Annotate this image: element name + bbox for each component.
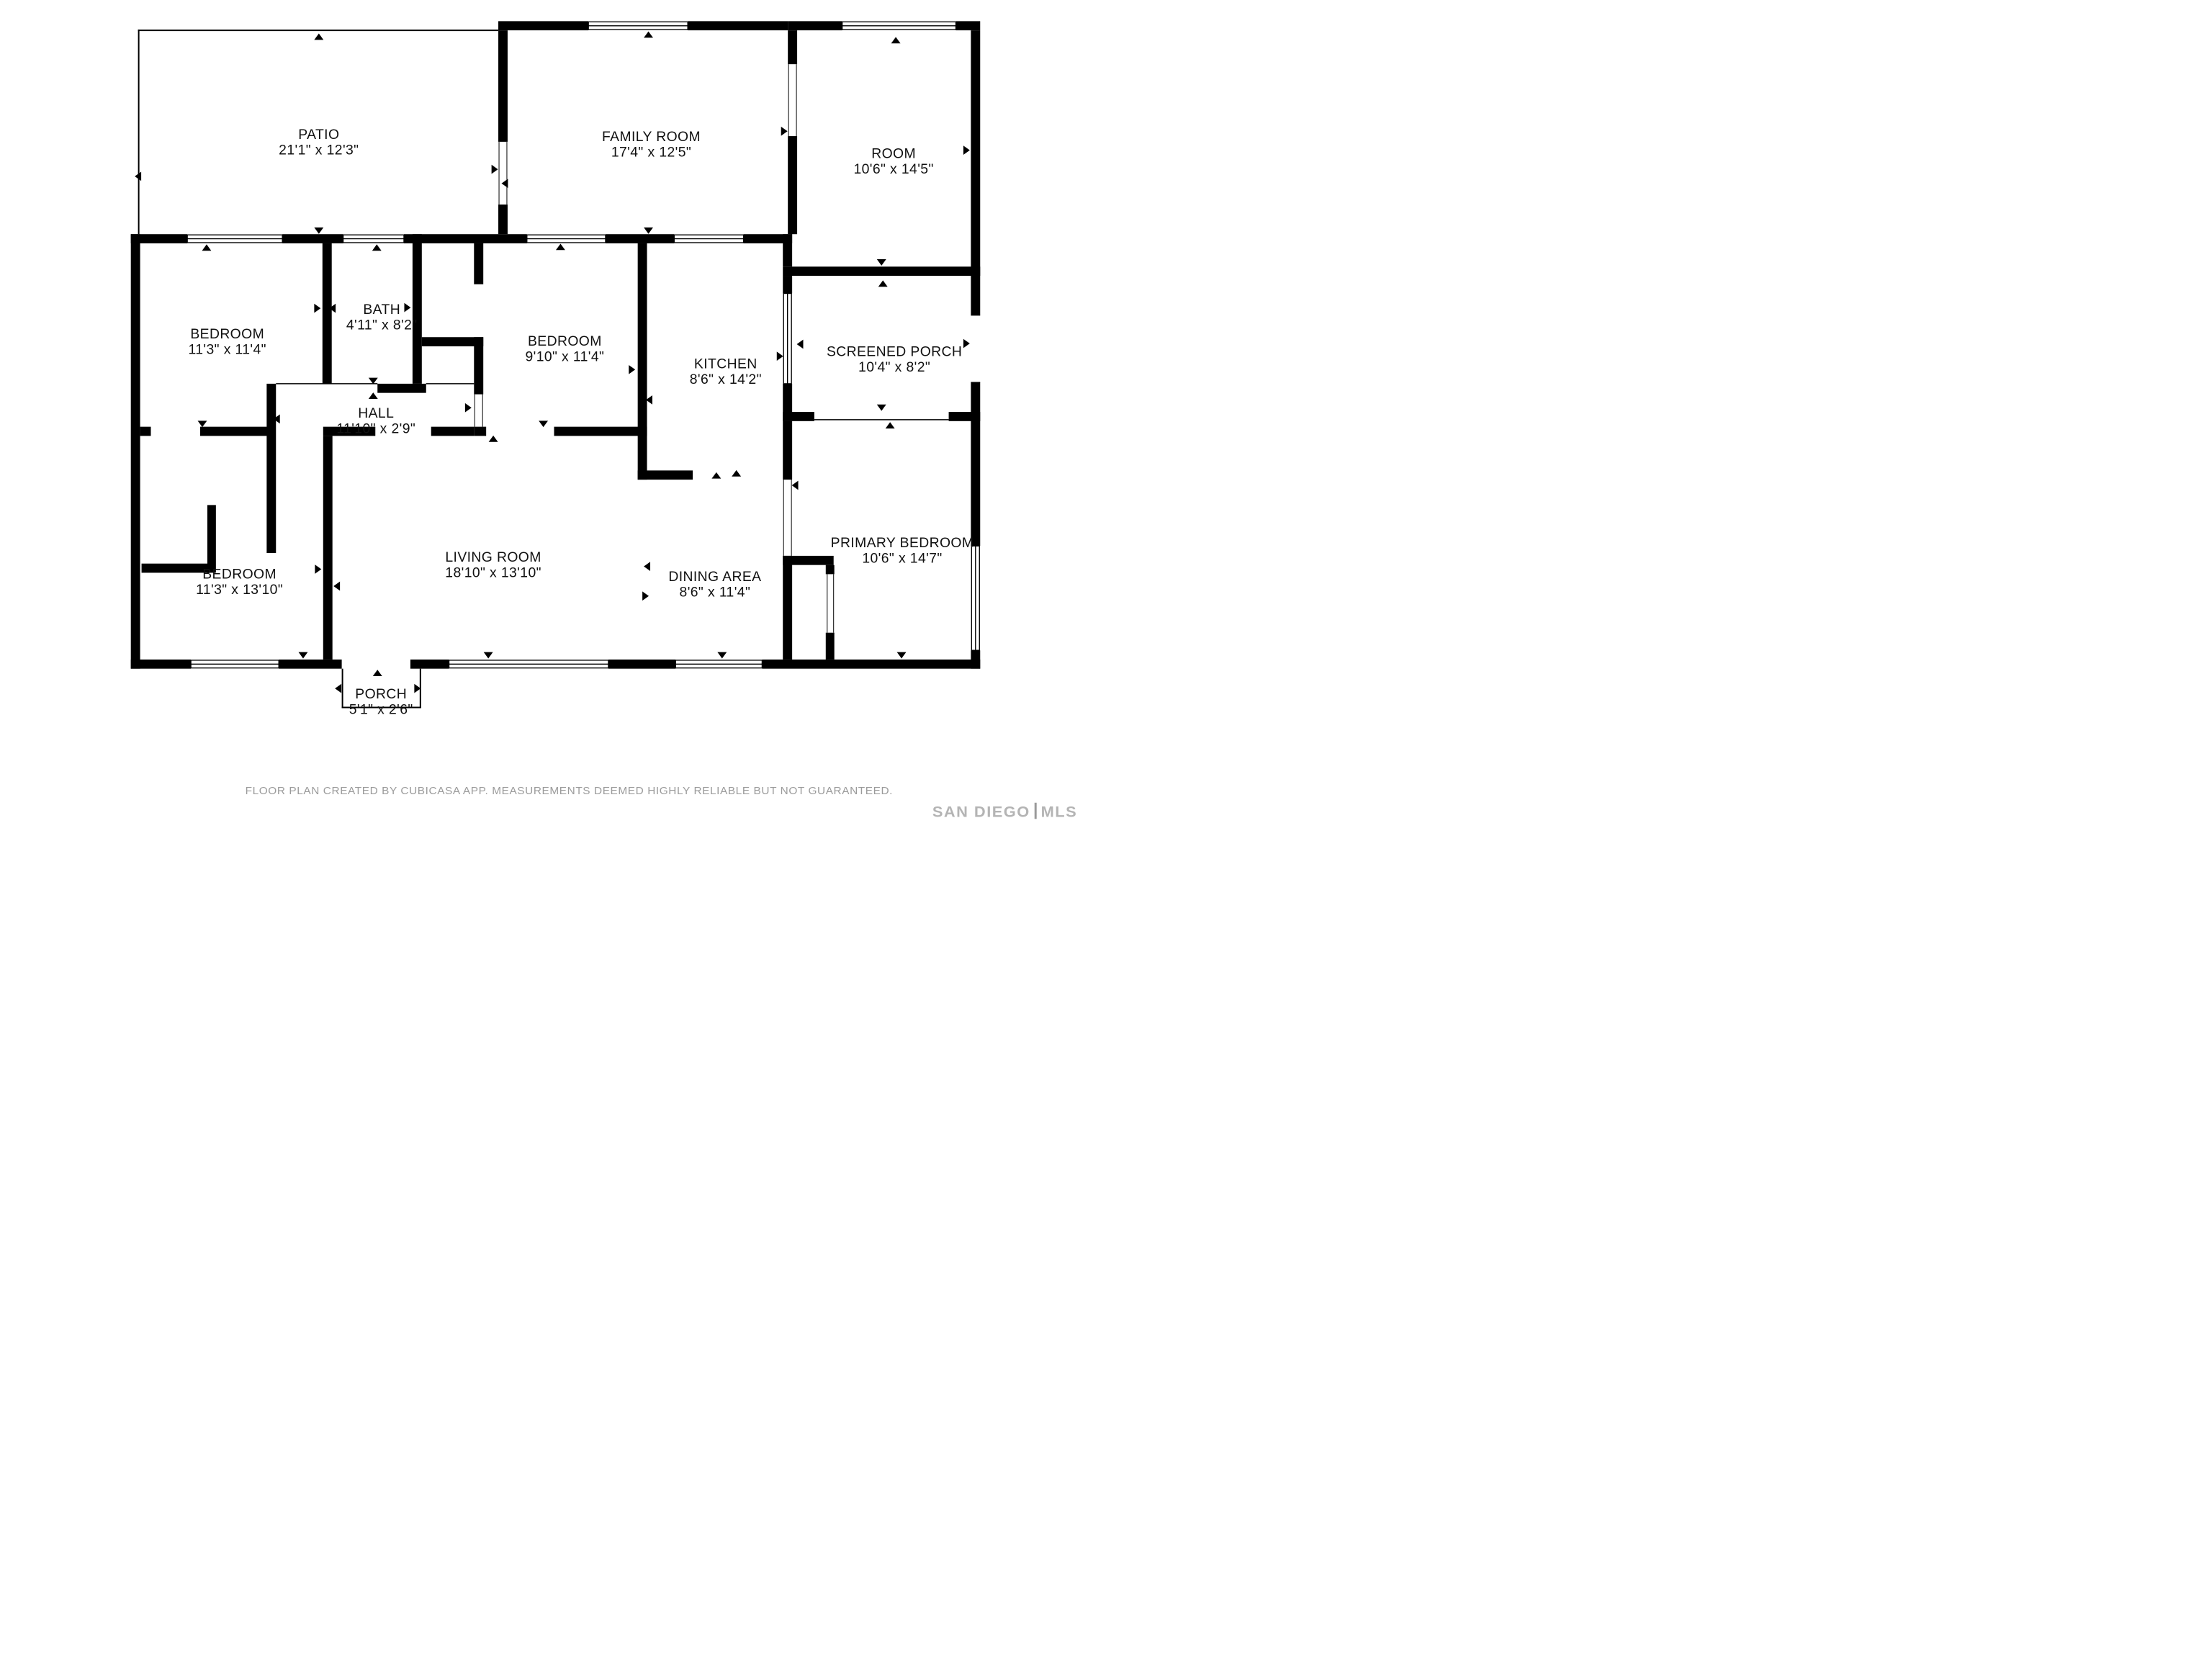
direction-arrow-icon bbox=[963, 339, 970, 349]
room-label-porch: PORCH bbox=[355, 687, 407, 702]
direction-arrow-icon bbox=[372, 244, 382, 251]
direction-arrow-icon bbox=[732, 470, 741, 477]
room-dims-patio: 21'1" x 12'3" bbox=[279, 143, 359, 158]
direction-arrow-icon bbox=[711, 472, 721, 479]
direction-arrow-icon bbox=[644, 562, 650, 571]
direction-arrow-icon bbox=[314, 304, 320, 313]
direction-arrow-icon bbox=[963, 145, 970, 155]
direction-arrow-icon bbox=[465, 403, 472, 413]
room-dims-kitchen: 8'6" x 14'2" bbox=[690, 372, 762, 387]
room-dims-hall: 11'10" x 2'9" bbox=[336, 422, 415, 437]
room-label-room: ROOM bbox=[871, 147, 916, 162]
mls-logo-name: SAN DIEGO bbox=[932, 803, 1030, 821]
room-labels: PATIO 21'1" x 12'3" FAMILY ROOM 17'4" x … bbox=[189, 127, 974, 717]
room-label-bedroom-bottom-left: BEDROOM bbox=[202, 567, 276, 582]
mls-logo: SAN DIEGO MLS bbox=[932, 803, 1077, 821]
room-dims-bedroom-middle: 9'10" x 11'4" bbox=[525, 350, 604, 365]
direction-arrow-icon bbox=[369, 378, 378, 385]
room-dims-bedroom-bottom-left: 11'3" x 13'10" bbox=[196, 583, 283, 598]
disclaimer-text: FLOOR PLAN CREATED BY CUBICASA APP. MEAS… bbox=[246, 785, 893, 797]
direction-arrow-icon bbox=[333, 582, 340, 591]
direction-arrow-icon bbox=[314, 34, 323, 40]
direction-arrow-icon bbox=[314, 228, 323, 234]
mls-logo-divider-icon bbox=[1035, 803, 1037, 819]
direction-arrow-icon bbox=[792, 481, 799, 490]
direction-arrow-icon bbox=[877, 405, 886, 411]
direction-arrow-icon bbox=[886, 422, 895, 428]
room-dims-dining-area: 8'6" x 11'4" bbox=[680, 585, 751, 601]
direction-arrow-icon bbox=[484, 652, 493, 659]
room-label-living-room: LIVING ROOM bbox=[445, 550, 541, 565]
room-dims-screened-porch: 10'4" x 8'2" bbox=[858, 360, 930, 375]
direction-arrow-icon bbox=[897, 652, 907, 659]
room-label-patio: PATIO bbox=[298, 127, 339, 143]
direction-arrow-icon bbox=[717, 652, 727, 659]
room-label-bedroom-middle: BEDROOM bbox=[528, 334, 602, 349]
direction-arrow-icon bbox=[539, 421, 548, 427]
room-dims-porch: 5'1" x 2'6" bbox=[349, 702, 413, 717]
direction-arrow-icon bbox=[492, 165, 498, 174]
room-label-hall: HALL bbox=[358, 406, 394, 421]
direction-arrow-icon bbox=[878, 280, 888, 287]
direction-arrow-icon bbox=[198, 421, 207, 427]
room-label-primary-bedroom: PRIMARY BEDROOM bbox=[831, 536, 974, 551]
room-dims-room: 10'6" x 14'5" bbox=[853, 162, 933, 177]
direction-arrow-icon bbox=[644, 32, 653, 38]
room-label-bath: BATH bbox=[363, 302, 400, 318]
direction-arrow-icon bbox=[781, 127, 788, 136]
room-dims-primary-bedroom: 10'6" x 14'7" bbox=[862, 552, 942, 567]
direction-arrow-icon bbox=[202, 244, 211, 251]
direction-arrow-icon bbox=[891, 37, 901, 43]
room-dims-bedroom-top-left: 11'3" x 11'4" bbox=[189, 343, 266, 358]
room-label-dining-area: DINING AREA bbox=[668, 570, 761, 585]
room-label-kitchen: KITCHEN bbox=[694, 356, 757, 372]
direction-arrow-icon bbox=[797, 340, 804, 349]
direction-arrow-icon bbox=[335, 684, 341, 693]
direction-arrow-icon bbox=[556, 243, 565, 250]
direction-arrow-icon bbox=[877, 259, 886, 266]
floor-plan: PATIO 21'1" x 12'3" FAMILY ROOM 17'4" x … bbox=[0, 0, 1106, 829]
room-dims-bath: 4'11" x 8'2" bbox=[346, 318, 418, 333]
direction-arrow-icon bbox=[373, 670, 382, 676]
direction-arrow-icon bbox=[315, 565, 321, 574]
direction-arrow-icon bbox=[629, 365, 635, 374]
direction-arrow-icon bbox=[644, 228, 653, 234]
mls-logo-suffix: MLS bbox=[1041, 803, 1078, 821]
direction-arrow-icon bbox=[299, 652, 308, 659]
direction-arrow-icon bbox=[502, 179, 508, 188]
room-dims-living-room: 18'10" x 13'10" bbox=[445, 565, 541, 580]
direction-arrow-icon bbox=[404, 303, 410, 313]
direction-arrow-icon bbox=[642, 591, 649, 601]
direction-arrow-icon bbox=[489, 436, 498, 442]
direction-arrow-icon bbox=[777, 351, 783, 361]
room-label-bedroom-top-left: BEDROOM bbox=[190, 327, 264, 342]
room-label-screened-porch: SCREENED PORCH bbox=[827, 345, 962, 360]
room-dims-family-room: 17'4" x 12'5" bbox=[611, 145, 691, 161]
direction-arrow-icon bbox=[369, 392, 378, 399]
room-label-family-room: FAMILY ROOM bbox=[602, 130, 701, 145]
floor-plan-page: PATIO 21'1" x 12'3" FAMILY ROOM 17'4" x … bbox=[0, 0, 1106, 829]
